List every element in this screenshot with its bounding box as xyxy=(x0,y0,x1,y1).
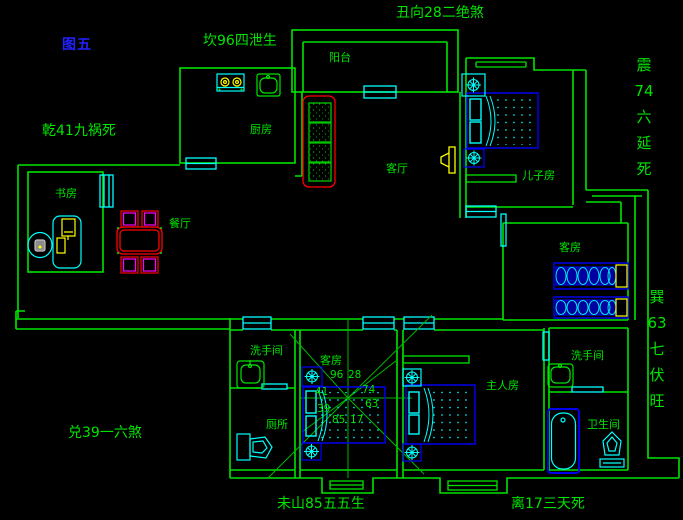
ceiling-fan-icon xyxy=(405,445,420,460)
guest-nightstand-bottom xyxy=(302,443,321,460)
annotation-kan: 坎96四泄生 xyxy=(203,34,277,48)
stove xyxy=(217,74,244,91)
son-bed xyxy=(467,93,538,148)
room-label-guest-right: 客房 xyxy=(559,242,581,253)
bathtub xyxy=(548,409,579,473)
room-label-dining: 餐厅 xyxy=(169,218,191,229)
tv xyxy=(441,147,455,173)
ceiling-fan-icon xyxy=(305,369,320,384)
room-label-guest-bottom: 客房 xyxy=(320,355,342,366)
annotation-qian: 乾41九祸死 xyxy=(42,124,116,138)
floor-plan-canvas: 图五 坎96四泄生 丑向28二绝煞 乾41九祸死 兑39一六煞 未山85五五生 … xyxy=(0,0,683,520)
figure-label: 图五 xyxy=(62,38,92,52)
toilet-left xyxy=(237,434,272,460)
annotation-xun: 巽 63 七 伏 旺 xyxy=(646,284,668,414)
toilet-right xyxy=(600,432,624,467)
room-label-washroom-left: 洗手间 xyxy=(250,345,283,356)
room-label-study: 书房 xyxy=(55,188,77,199)
compass-number-74: 74 xyxy=(362,385,375,396)
annotation-dui: 兑39一六煞 xyxy=(68,426,142,440)
compass-number-96: 96 xyxy=(330,370,343,381)
room-label-washroom-right: 洗手间 xyxy=(571,350,604,361)
room-label-bathroom: 卫生间 xyxy=(587,419,620,430)
floor-plan-drawing xyxy=(0,0,683,520)
compass-number-28: 28 xyxy=(348,370,361,381)
twin-bed-1 xyxy=(554,263,628,289)
dining-chairs xyxy=(121,211,158,273)
room-label-son-room: 儿子房 xyxy=(522,170,555,181)
master-bed xyxy=(406,385,475,444)
compass-number-41: 41 xyxy=(315,387,328,398)
washroom-left-sink xyxy=(237,360,264,388)
room-label-living: 客厅 xyxy=(386,163,408,174)
room-label-balcony: 阳台 xyxy=(329,52,351,63)
son-nightstand-bottom xyxy=(464,149,484,167)
ceiling-fan-icon xyxy=(467,151,482,166)
compass-number-63: 63 xyxy=(365,399,378,410)
room-label-kitchen: 厨房 xyxy=(250,124,272,135)
ceiling-fan-icon xyxy=(304,444,319,459)
study-chair xyxy=(28,233,52,258)
washroom-right-sink xyxy=(548,364,573,387)
room-label-master: 主人房 xyxy=(486,380,519,391)
annotation-chou: 丑向28二绝煞 xyxy=(396,6,484,20)
guest-nightstand-top xyxy=(302,367,322,386)
ceiling-fan-icon xyxy=(466,78,481,93)
compass-number-39: 39 xyxy=(317,404,330,415)
annotation-li: 离17三天死 xyxy=(511,497,585,511)
kitchen-sink xyxy=(257,74,280,96)
compass-number-85: 85 xyxy=(332,415,345,426)
ceiling-fan-icon xyxy=(405,370,420,385)
master-nightstand-top xyxy=(403,369,421,386)
annotation-zhen: 震 74 六 延 死 xyxy=(633,52,655,182)
annotation-wei: 未山85五五生 xyxy=(277,497,365,511)
dining-table xyxy=(117,227,162,254)
compass-number-17: 17 xyxy=(350,415,363,426)
twin-bed-2 xyxy=(554,297,628,318)
study-desk xyxy=(53,216,81,268)
master-nightstand-bottom xyxy=(403,444,421,461)
room-label-toilet: 厕所 xyxy=(266,419,288,430)
sofa xyxy=(303,96,335,187)
